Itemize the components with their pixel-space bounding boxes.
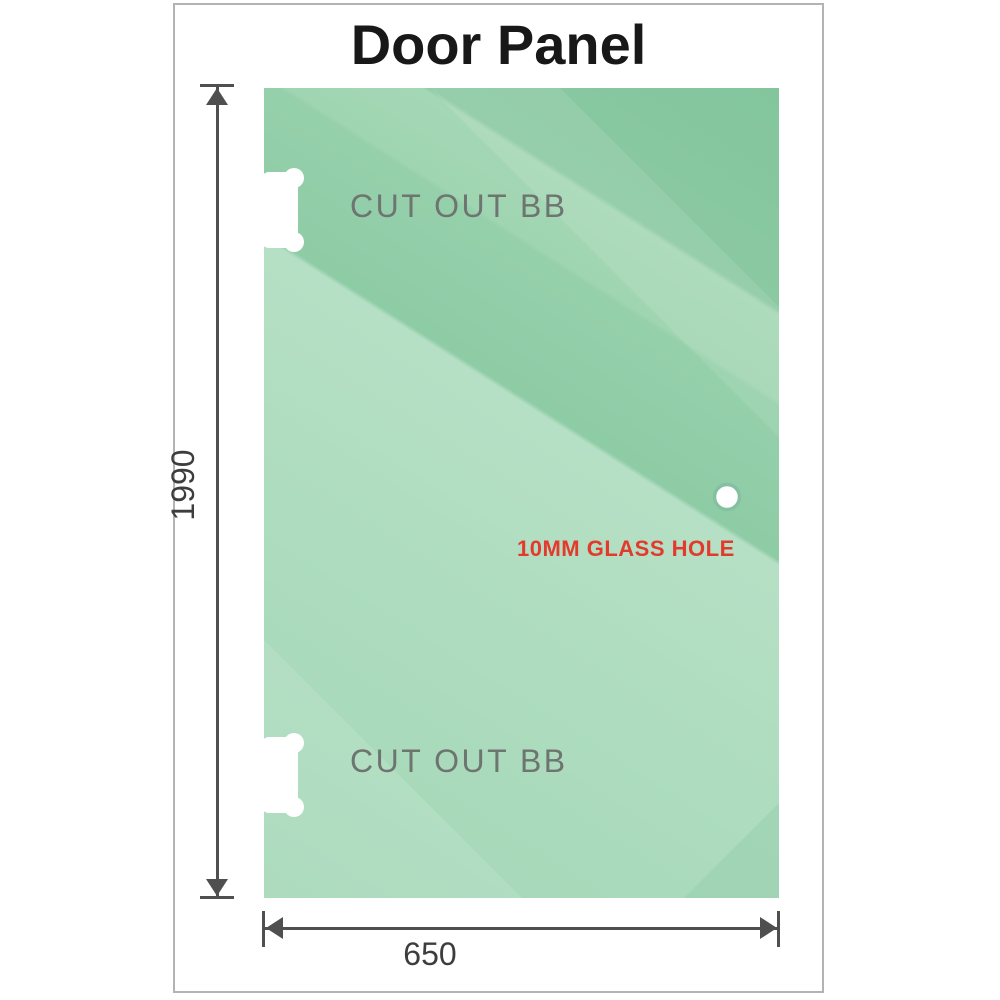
width-dimension-line (265, 927, 778, 930)
hinge-cutout-top (261, 168, 304, 252)
height-dim-cap-bottom (200, 896, 234, 899)
width-dim-arrow-left (266, 917, 283, 939)
cutout-top-label: CUT OUT BB (350, 188, 568, 225)
width-dim-arrow-right (760, 917, 777, 939)
glass-hole (715, 485, 740, 510)
glass-hole-label: 10MM GLASS HOLE (517, 536, 735, 562)
height-dim-arrow-bottom (206, 879, 228, 896)
door-panel-drawing: Door Panel (0, 0, 1000, 1000)
width-dimension-label: 650 (355, 936, 505, 973)
hinge-cutout-bottom (261, 733, 304, 817)
width-dim-tick-right (777, 911, 780, 947)
height-dimension-line (216, 87, 219, 896)
height-dim-arrow-top (206, 88, 228, 105)
cutout-bottom-label: CUT OUT BB (350, 743, 568, 780)
height-dimension-label: 1990 (165, 410, 205, 560)
diagram-title: Door Panel (173, 12, 824, 77)
